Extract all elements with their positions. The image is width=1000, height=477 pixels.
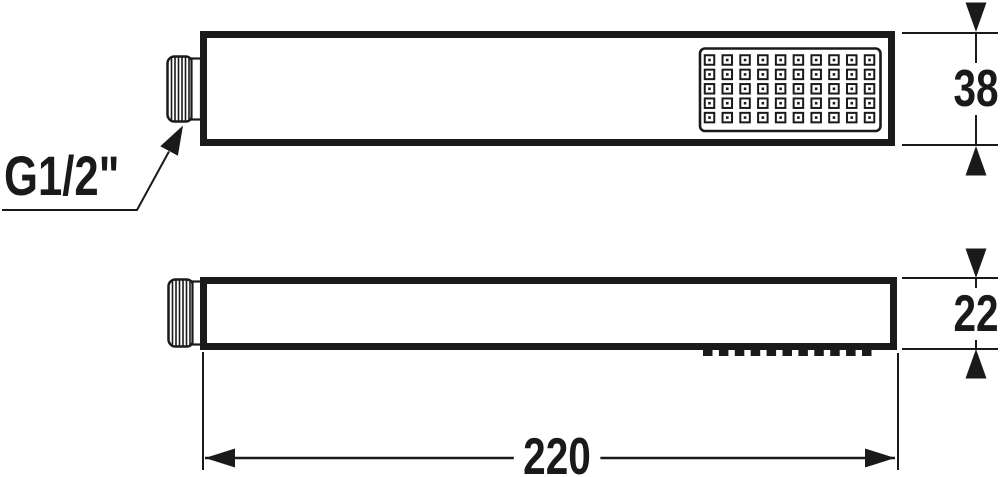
spray-nozzle-dot	[779, 116, 782, 119]
nozzle-tooth	[783, 350, 793, 357]
arrow-up-icon	[966, 349, 987, 379]
spray-nozzle-dot	[708, 59, 711, 62]
spray-nozzle-dot	[762, 88, 765, 91]
spray-nozzle-dot	[762, 102, 765, 105]
spray-nozzle-dot	[797, 88, 800, 91]
spray-nozzle-dot	[797, 116, 800, 119]
spray-nozzle-dot	[868, 73, 871, 76]
dimension-height-side-value: 22	[944, 288, 1000, 340]
spray-nozzle-dot	[868, 102, 871, 105]
spray-nozzle-dot	[833, 88, 836, 91]
dimension-height-top-value: 38	[944, 63, 1000, 115]
spray-nozzle-dot	[779, 102, 782, 105]
dimension-length-value: 220	[514, 431, 600, 477]
spray-nozzle-dot	[868, 116, 871, 119]
spray-nozzle-dot	[726, 102, 729, 105]
spray-nozzle-dot	[762, 116, 765, 119]
technical-drawing-canvas: G1/2" 38 22 220	[0, 0, 1000, 477]
spray-nozzle-dot	[779, 59, 782, 62]
spray-nozzle-dot	[833, 59, 836, 62]
thread-size-label: G1/2"	[4, 148, 119, 204]
spray-nozzle-dot	[708, 73, 711, 76]
spray-nozzle-dot	[726, 116, 729, 119]
nozzle-tooth	[735, 350, 745, 357]
leader-arrow-icon	[160, 126, 183, 156]
spray-nozzle-dot	[762, 59, 765, 62]
spray-nozzle-dot	[815, 88, 818, 91]
spray-nozzle-dot	[726, 59, 729, 62]
spray-nozzle-dot	[744, 88, 747, 91]
thread-connector-side-icon	[169, 280, 203, 347]
spray-nozzle-dot	[850, 59, 853, 62]
nozzle-tooth	[862, 350, 872, 357]
arrow-right-icon	[865, 449, 895, 468]
arrow-down-icon	[966, 249, 987, 279]
arrow-left-icon	[205, 449, 235, 468]
spray-nozzle-dot	[815, 73, 818, 76]
nozzle-tooth	[846, 350, 856, 357]
drawing-svg	[0, 0, 1000, 477]
spray-nozzle-dot	[744, 73, 747, 76]
spray-nozzle-dot	[726, 88, 729, 91]
spray-nozzle-dot	[850, 116, 853, 119]
arrow-up-icon	[966, 146, 987, 176]
nozzle-tooth	[830, 350, 840, 357]
spray-nozzle-dot	[708, 102, 711, 105]
nozzle-tooth	[814, 350, 824, 357]
spray-nozzle-dot	[744, 59, 747, 62]
thread-connector-top-icon	[168, 57, 202, 123]
spray-nozzle-dot	[708, 116, 711, 119]
spray-nozzle-dot	[868, 88, 871, 91]
spray-nozzle-dot	[779, 88, 782, 91]
spray-nozzle-dot	[833, 102, 836, 105]
nozzle-tooth	[751, 350, 761, 357]
spray-nozzle-dot	[744, 116, 747, 119]
spray-nozzle-dot	[797, 102, 800, 105]
spray-nozzle-dot	[833, 116, 836, 119]
spray-nozzle-dot	[850, 88, 853, 91]
nozzle-tooth	[798, 350, 808, 357]
spray-nozzle-dot	[726, 73, 729, 76]
top-view	[168, 35, 892, 143]
nozzle-tooth	[703, 350, 713, 357]
spray-nozzle-dot	[868, 59, 871, 62]
spray-nozzle-dot	[815, 59, 818, 62]
spray-nozzle-dot	[850, 102, 853, 105]
spray-nozzle-dot	[833, 73, 836, 76]
nozzle-tooth	[719, 350, 729, 357]
side-view-body	[204, 281, 894, 347]
connector-collar	[192, 59, 202, 120]
spray-nozzle-dot	[815, 116, 818, 119]
spray-nozzle-dot	[708, 88, 711, 91]
spray-nozzle-dot	[797, 73, 800, 76]
spray-nozzle-dot	[744, 102, 747, 105]
nozzle-tooth	[767, 350, 777, 357]
spray-nozzle-dot	[815, 102, 818, 105]
spray-nozzle-dot	[850, 73, 853, 76]
arrow-down-icon	[966, 3, 987, 33]
nozzle-teeth	[703, 350, 872, 357]
spray-nozzle-dot	[762, 73, 765, 76]
side-view	[169, 280, 894, 357]
spray-nozzle-dot	[779, 73, 782, 76]
spray-nozzle-dot	[797, 59, 800, 62]
